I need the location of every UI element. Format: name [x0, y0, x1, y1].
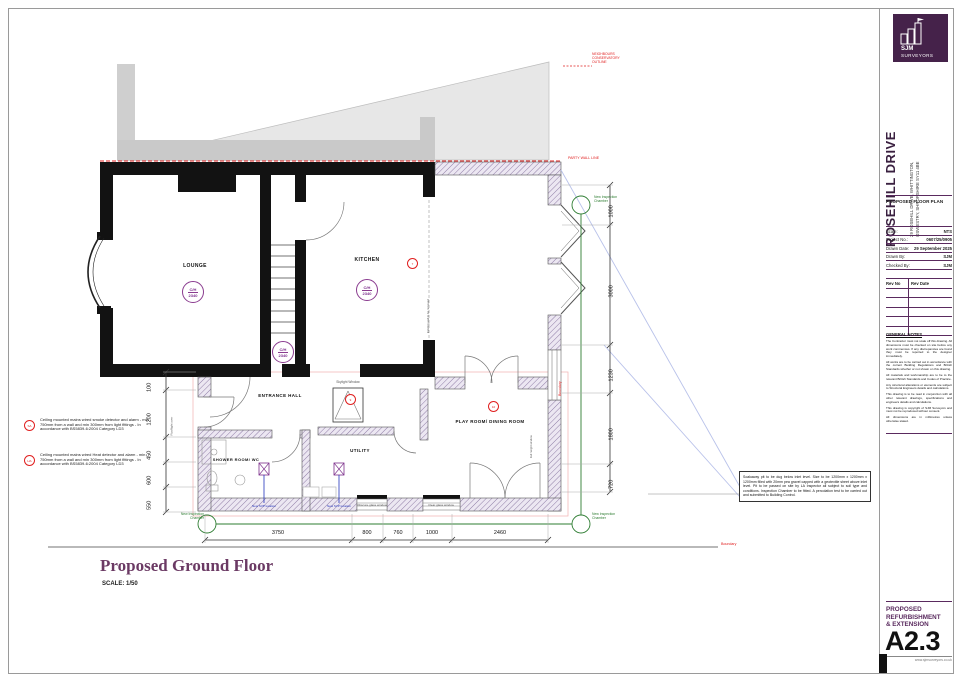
field-value: NTS — [944, 229, 952, 234]
titleblock-rule-2 — [886, 601, 952, 602]
soakaway-note: Soakaway pit to be dug below inlet level… — [739, 471, 871, 502]
field-project-no: Project No.: 0607/25/0905 — [886, 236, 952, 245]
room-label-kitchen: KITCHEN — [332, 258, 402, 264]
svp-label-1: New SVP location — [247, 505, 281, 508]
field-label: Checked By: — [886, 263, 910, 268]
titleblock-rule-3 — [886, 656, 952, 657]
note-ref-playroom: 10 — [488, 401, 499, 412]
field-value: 29 September 2025 — [914, 246, 952, 251]
general-notes-title: GENERAL NOTES — [886, 333, 952, 338]
room-label-playroom: PLAY ROOM/ DINING ROOM — [452, 419, 528, 424]
logo-name: SJM — [901, 46, 913, 53]
party-wall-label: PARTY WALL LINE — [568, 156, 618, 160]
skylight-label: Skylight Window — [326, 381, 370, 385]
plan-scale: SCALE: 1/50 — [102, 581, 138, 588]
dim-left-2: 1200 — [147, 407, 153, 431]
dim-left-3: 450 — [147, 443, 153, 467]
room-label-lounge: LOUNGE — [160, 264, 230, 270]
project-address-line2: OSWESTRY, SHROPSHIRE SY11 4BE — [916, 85, 921, 237]
dim-bottom-1: 3750 — [261, 530, 295, 536]
drawing-type: PROPOSED FLOOR PLAN — [886, 199, 952, 204]
ceiling-height-symbol-hall: C/H 2340 — [272, 341, 294, 363]
ch-value: 2340 — [189, 293, 198, 298]
ceiling-height-symbol-kitchen: C/H 2340 — [356, 279, 378, 301]
frame-corner-mark — [879, 654, 887, 673]
dim-left-4: 600 — [147, 468, 153, 492]
general-notes: GENERAL NOTES The Contractor must not sc… — [886, 333, 952, 434]
ceiling-height-symbol-lounge: C/H 2340 — [182, 281, 204, 303]
dim-right-2: 3000 — [609, 279, 615, 303]
door-swings — [204, 200, 540, 498]
note-ref-kitchen: 7 — [407, 258, 418, 269]
neighbours-outline-label: NEIGHBOURS CONSERVATORY OUTLINE — [592, 53, 634, 65]
general-note: This drawing is copyright of SJM Surveyo… — [886, 407, 952, 414]
dim-bottom-4: 1000 — [415, 530, 449, 536]
field-label: Project No.: — [886, 237, 908, 242]
note-ref-hall: 9 — [345, 394, 356, 405]
titleblock-rule-1 — [886, 195, 952, 196]
website: www.sjmsurveyors.co.uk — [886, 659, 952, 663]
stairs — [271, 245, 295, 333]
field-checked-by: Checked By: SJM — [886, 261, 952, 270]
revision-row — [886, 308, 952, 318]
revision-header-row: Rev No Rev Date — [886, 279, 952, 289]
heat-detector-ref: HA — [24, 455, 35, 466]
heat-detector-note: Ceiling mounted mains wired Heat detecto… — [40, 453, 152, 467]
general-note: All works are to be carried out in accor… — [886, 361, 952, 372]
smoke-detector-ref: SA — [24, 420, 35, 431]
plan-title: Proposed Ground Floor — [100, 556, 273, 576]
revision-row — [886, 298, 952, 308]
svp-label-2: New SVP location — [322, 505, 356, 508]
dim-right-1: 1000 — [609, 199, 615, 223]
rev-no-header: Rev No — [886, 279, 909, 288]
dim-bottom-5: 2460 — [483, 530, 517, 536]
general-note: All materials and workmanship are to be … — [886, 374, 952, 381]
floor-plan-canvas — [0, 0, 961, 681]
general-note: Any structural alterations or elements a… — [886, 384, 952, 391]
field-drawn-by: Drawn By: SJM — [886, 253, 952, 262]
field-drawn-date: Drawn Date: 29 September 2025 — [886, 244, 952, 253]
general-note: The Contractor must not scale off this d… — [886, 340, 952, 358]
general-note: All dimensions are in millimetres unless… — [886, 416, 952, 423]
dim-right-5: 720 — [609, 472, 615, 496]
boundary-label-bottom: Boundary — [721, 542, 751, 546]
removed-wall-label: Existing wall to be removed — [427, 263, 430, 333]
dim-bottom-2: 800 — [350, 530, 384, 536]
glazing-label: Full height window — [530, 408, 533, 458]
revision-row — [886, 317, 952, 327]
obscure-window-label: Obscure glass window — [353, 504, 391, 507]
rooflight-label: Rooflight over — [171, 391, 174, 435]
field-value: SJM — [943, 254, 952, 259]
room-label-utility: UTILITY — [338, 448, 382, 453]
ch-value: 2340 — [279, 353, 288, 358]
drawing-sheet: LOUNGE KITCHEN ENTRANCE HALL SHOWER ROOM… — [0, 0, 961, 681]
inspection-chamber-label-bottom-left: New Inspection Chamber — [176, 513, 204, 521]
field-scale: Scale: NTS — [886, 227, 952, 236]
inspection-chamber-label-bottom-right: New Inspection Chamber — [592, 513, 620, 521]
logo-subname: SURVEYORS — [901, 53, 933, 58]
field-label: Drawn Date: — [886, 246, 909, 251]
dim-left-1: 100 — [147, 375, 153, 399]
boundary-label-vertical: Boundary — [559, 356, 563, 396]
rev-date-header: Rev Date — [909, 281, 952, 286]
neighbour-outline — [117, 62, 549, 161]
room-label-shower-room: SHOWER ROOM/ WC — [212, 458, 260, 463]
dim-right-3: 1230 — [609, 363, 615, 387]
field-label: Drawn By: — [886, 254, 905, 259]
ch-value: 2340 — [363, 291, 372, 296]
sheet-number: A2.3 — [885, 626, 940, 657]
company-logo: SJM SURVEYORS — [893, 14, 948, 62]
dim-left-5: 550 — [147, 493, 153, 517]
dimension-lines — [163, 182, 613, 543]
info-fields: Scale: NTS Project No.: 0607/25/0905 Dra… — [886, 226, 952, 270]
revision-table: Rev No Rev Date — [886, 278, 952, 336]
room-label-entrance-hall: ENTRANCE HALL — [235, 393, 325, 398]
project-title: ROSEHILL DRIVE — [884, 95, 899, 247]
clear-window-label: Clear glass window — [420, 504, 462, 507]
dim-bottom-3: 760 — [381, 530, 415, 536]
field-value: 0607/25/0905 — [926, 237, 952, 242]
field-label: Scale: — [886, 229, 898, 234]
skylight-symbol — [333, 388, 363, 422]
smoke-detector-note: Ceiling mounted mains wired smoke detect… — [40, 418, 152, 432]
dim-right-4: 1800 — [609, 422, 615, 446]
revision-row — [886, 289, 952, 299]
field-value: SJM — [943, 263, 952, 268]
general-note: This drawing is to be read in conjunctio… — [886, 393, 952, 404]
